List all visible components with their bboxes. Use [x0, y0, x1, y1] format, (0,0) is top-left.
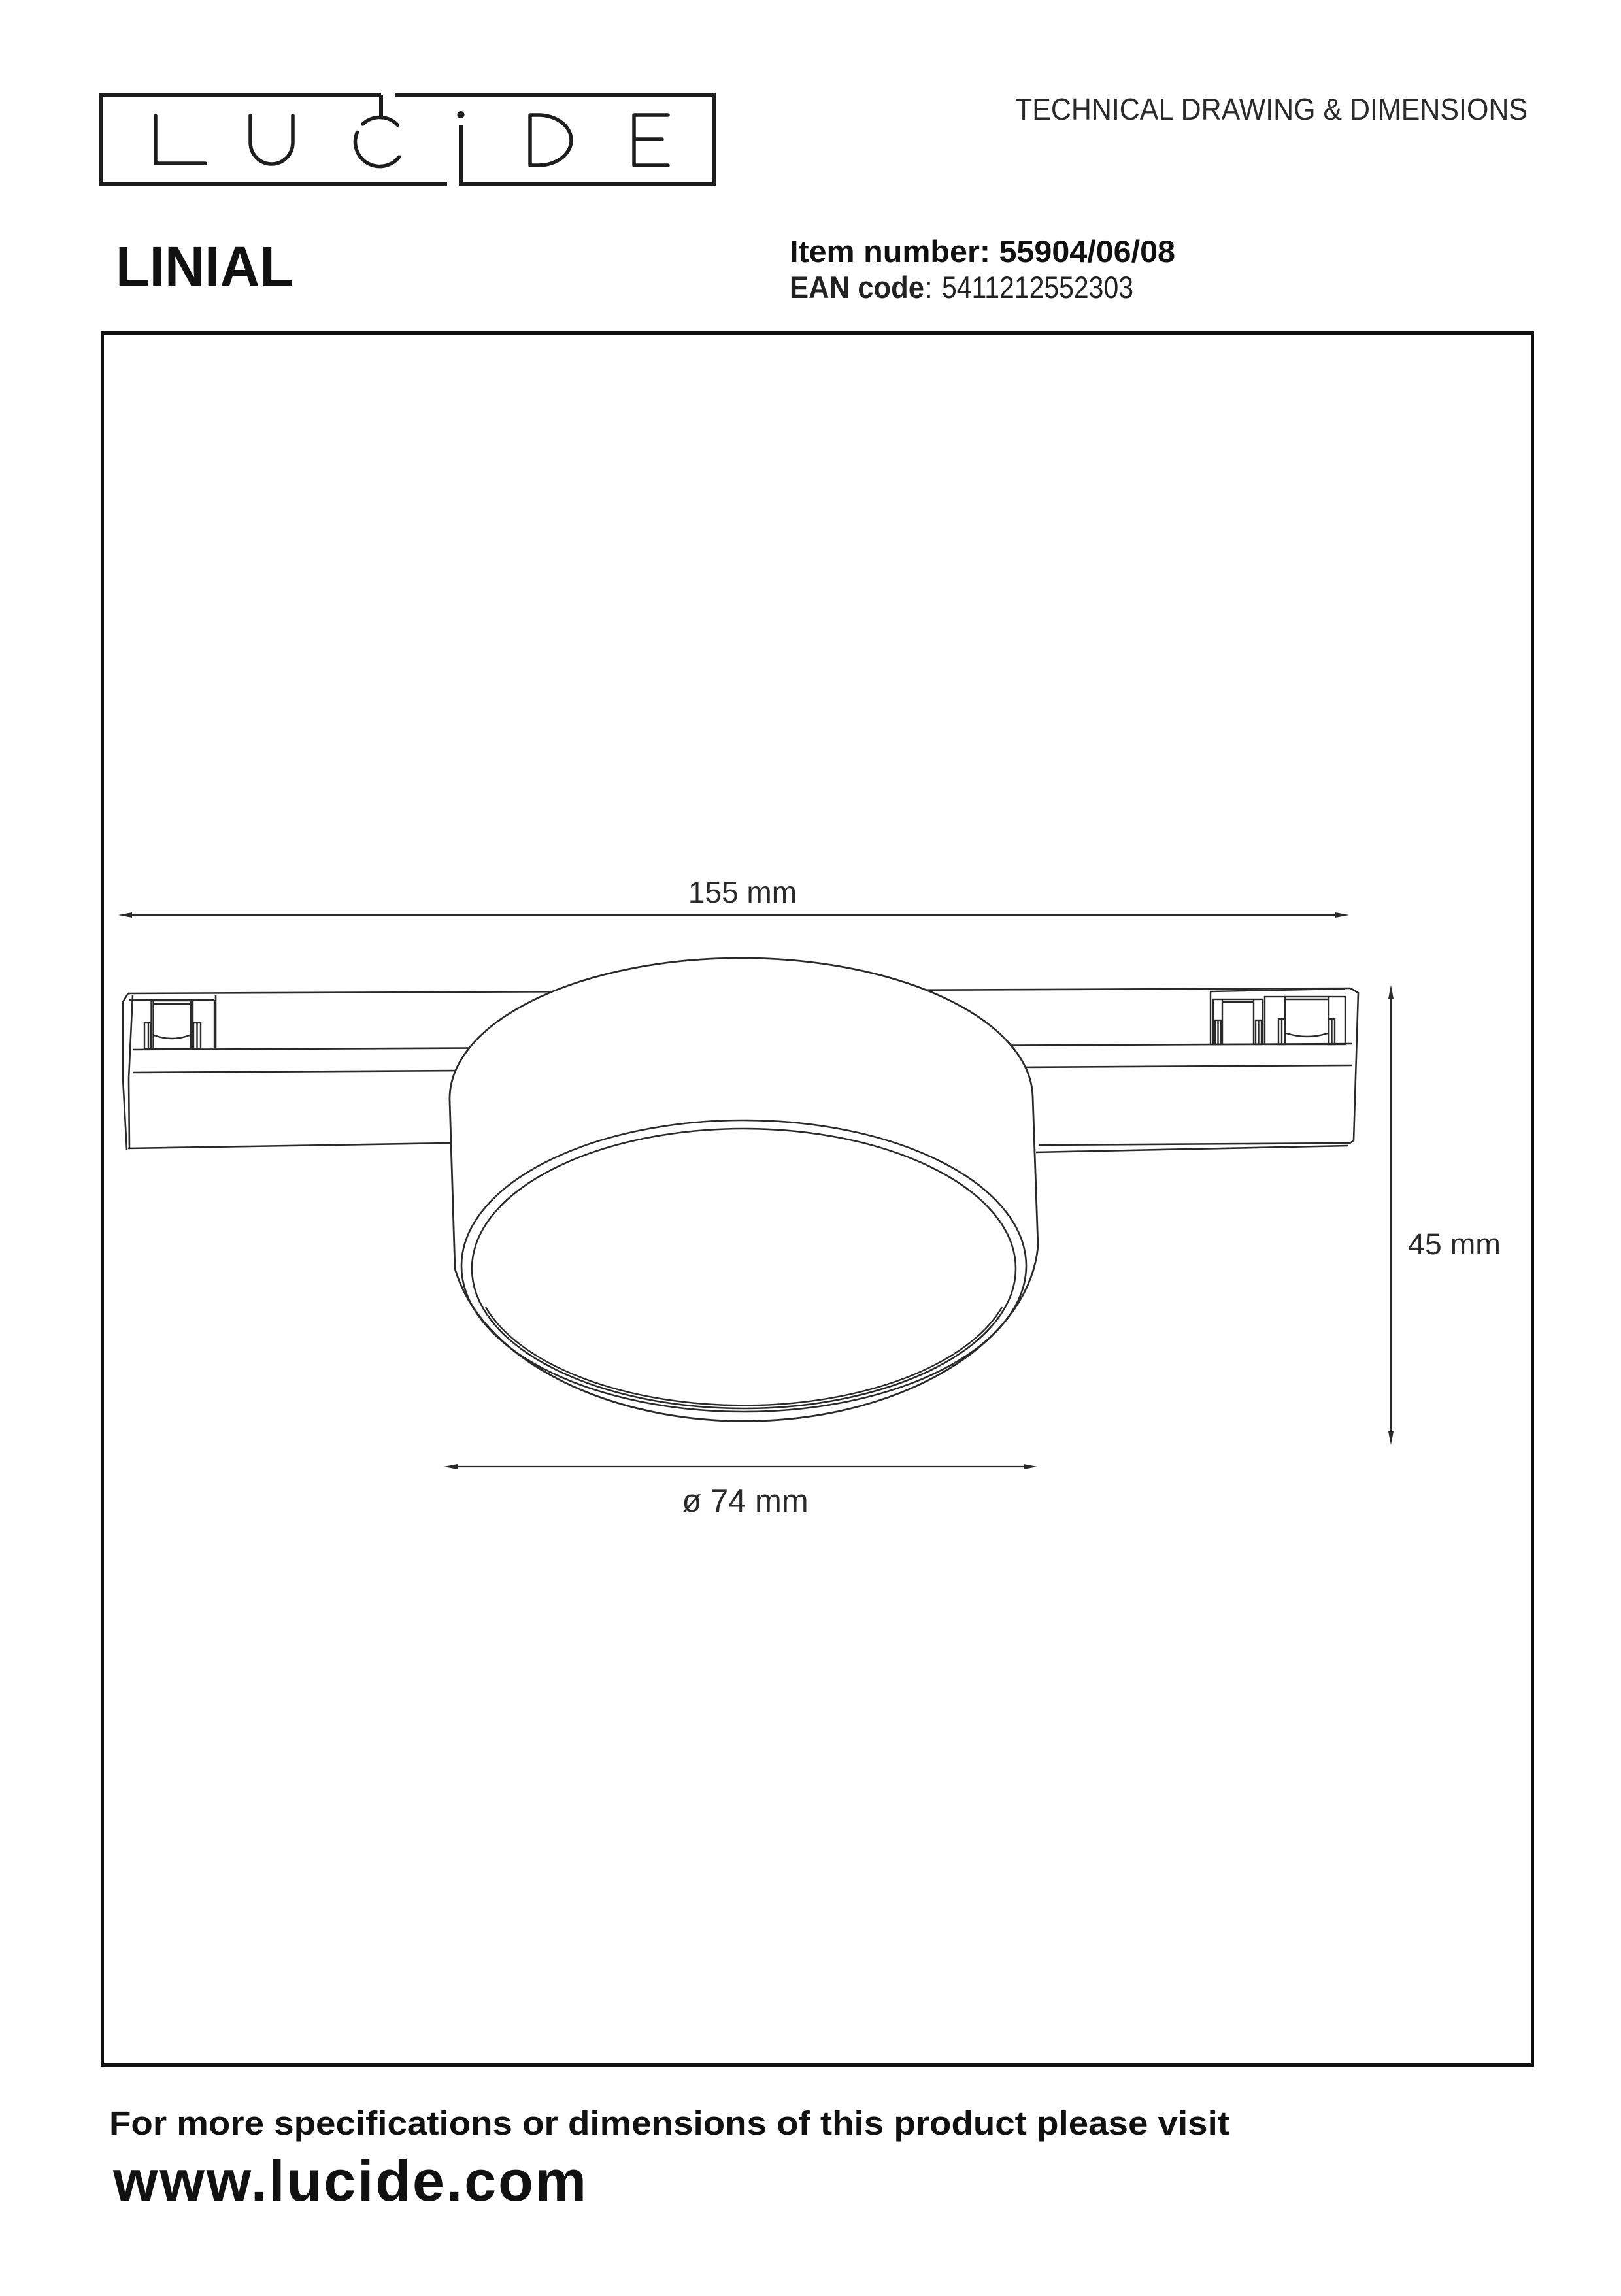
svg-text:TECHNICAL DRAWING & DIMENSIONS: TECHNICAL DRAWING & DIMENSIONS: [1015, 92, 1528, 126]
svg-text:www.lucide.com: www.lucide.com: [112, 2148, 586, 2213]
svg-text:ø 74 mm: ø 74 mm: [682, 1484, 808, 1519]
svg-text:LINIAL: LINIAL: [116, 235, 293, 299]
svg-text:For more specifications or dim: For more specifications or dimensions of…: [109, 2105, 1229, 2142]
svg-text:Item number: 55904/06/08: Item number: 55904/06/08: [790, 234, 1175, 269]
svg-text:45 mm: 45 mm: [1408, 1227, 1501, 1261]
svg-text:155 mm: 155 mm: [688, 875, 797, 909]
svg-text:EAN code:5411212552303: EAN code:5411212552303: [790, 270, 1133, 305]
